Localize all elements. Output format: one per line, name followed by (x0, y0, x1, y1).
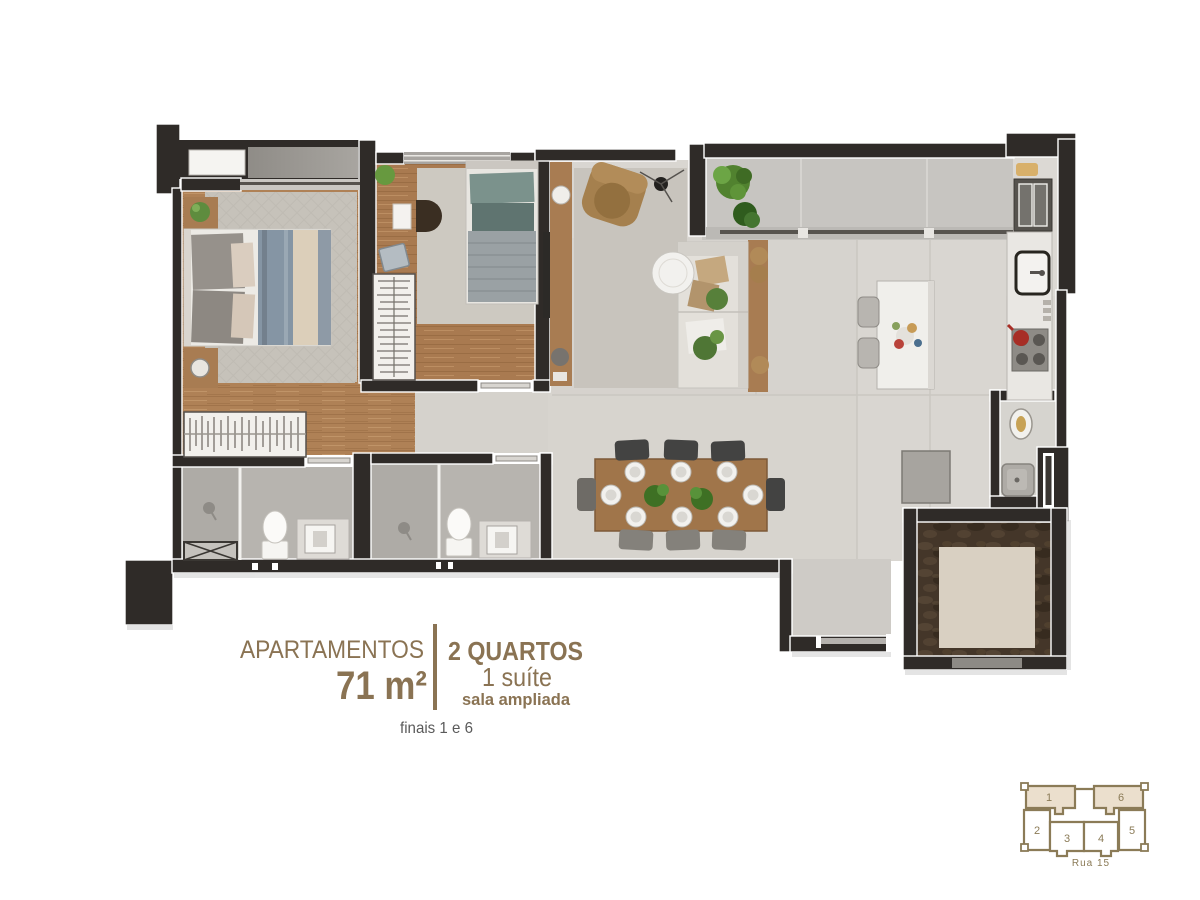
svg-text:4: 4 (1098, 833, 1104, 845)
svg-text:2: 2 (1034, 825, 1040, 837)
svg-text:Rua 15: Rua 15 (1072, 858, 1110, 869)
svg-text:finais 1 e 6: finais 1 e 6 (400, 720, 473, 737)
svg-text:1 suíte: 1 suíte (482, 662, 552, 692)
svg-text:APARTAMENTOS: APARTAMENTOS (240, 636, 424, 664)
svg-text:1: 1 (1046, 792, 1052, 804)
svg-text:71 m²: 71 m² (336, 664, 427, 708)
svg-text:6: 6 (1118, 792, 1124, 804)
svg-text:sala ampliada: sala ampliada (462, 690, 571, 709)
svg-text:3: 3 (1064, 833, 1070, 845)
svg-text:5: 5 (1129, 825, 1135, 837)
